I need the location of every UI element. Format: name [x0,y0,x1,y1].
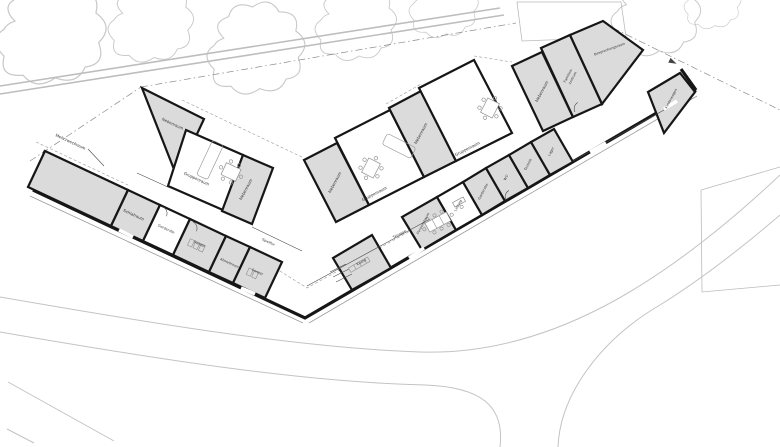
room-label-spielflur: Spielflur [261,237,276,247]
room-label-mehrzweckraum: Mehrzweckraum [55,132,87,150]
sidewalk-segment [8,382,114,441]
floor-plan: Mehrzweckraum Schlafraum Garderobe Sanit… [0,0,780,447]
room-mehrzweckraum-shape [28,151,128,226]
label-leader [88,149,104,166]
boundary-arrow-marker [668,58,677,66]
road-edge [0,332,501,447]
tree-icon [108,0,194,62]
site-plan-canvas: Mehrzweckraum Schlafraum Garderobe Sanit… [0,0,780,447]
tree-icon [684,0,741,29]
rooms-northeast-cluster [512,21,695,133]
sidewalk-segment [7,429,34,443]
footpath [0,8,504,94]
tree-icon [409,0,478,38]
road-edge [558,215,780,447]
room-label-terrasse: Terrasse [392,229,407,239]
